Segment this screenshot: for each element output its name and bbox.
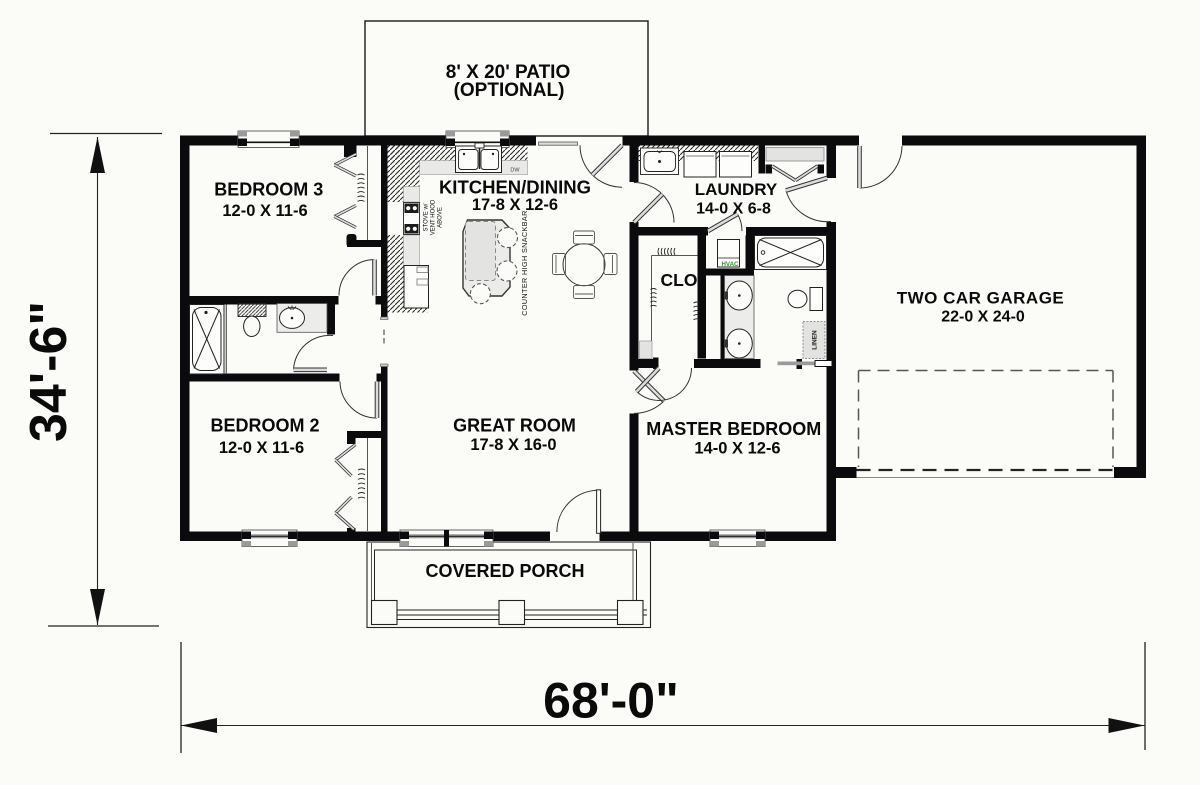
svg-text:DW: DW	[510, 168, 520, 174]
svg-text:COVERED PORCH: COVERED PORCH	[425, 561, 584, 581]
svg-text:KITCHEN/DINING: KITCHEN/DINING	[439, 177, 591, 198]
svg-text:12-0 X 11-6: 12-0 X 11-6	[222, 202, 307, 220]
svg-text:ABOVE: ABOVE	[438, 207, 444, 228]
svg-text:LAUNDRY: LAUNDRY	[695, 180, 778, 199]
svg-text:CLO: CLO	[661, 270, 698, 290]
svg-text:STOVE w/: STOVE w/	[424, 203, 430, 231]
svg-text:34'-6": 34'-6"	[20, 301, 78, 442]
svg-text:(OPTIONAL): (OPTIONAL)	[454, 80, 565, 101]
svg-text:17-8 X 16-0: 17-8 X 16-0	[470, 436, 556, 454]
svg-text:HVAC: HVAC	[721, 261, 739, 268]
svg-text:GREAT ROOM: GREAT ROOM	[453, 416, 576, 436]
svg-text:14-0 X 12-6: 14-0 X 12-6	[694, 440, 780, 458]
svg-text:22-0 X 24-0: 22-0 X 24-0	[941, 309, 1025, 326]
svg-text:LINEN: LINEN	[812, 330, 819, 350]
svg-text:14-0 X 6-8: 14-0 X 6-8	[696, 201, 771, 218]
svg-text:BEDROOM 2: BEDROOM 2	[210, 416, 319, 436]
svg-text:12-0 X 11-6: 12-0 X 11-6	[219, 439, 304, 457]
svg-text:68'-0": 68'-0"	[543, 673, 679, 729]
svg-text:VENT HOOD: VENT HOOD	[431, 199, 437, 235]
svg-text:17-8 X 12-6: 17-8 X 12-6	[472, 196, 558, 214]
svg-text:BEDROOM 3: BEDROOM 3	[214, 180, 323, 200]
svg-text:TWO CAR GARAGE: TWO CAR GARAGE	[897, 289, 1065, 308]
svg-text:COUNTER HIGH SNACKBAR: COUNTER HIGH SNACKBAR	[520, 210, 529, 315]
svg-text:MASTER BEDROOM: MASTER BEDROOM	[646, 419, 821, 439]
